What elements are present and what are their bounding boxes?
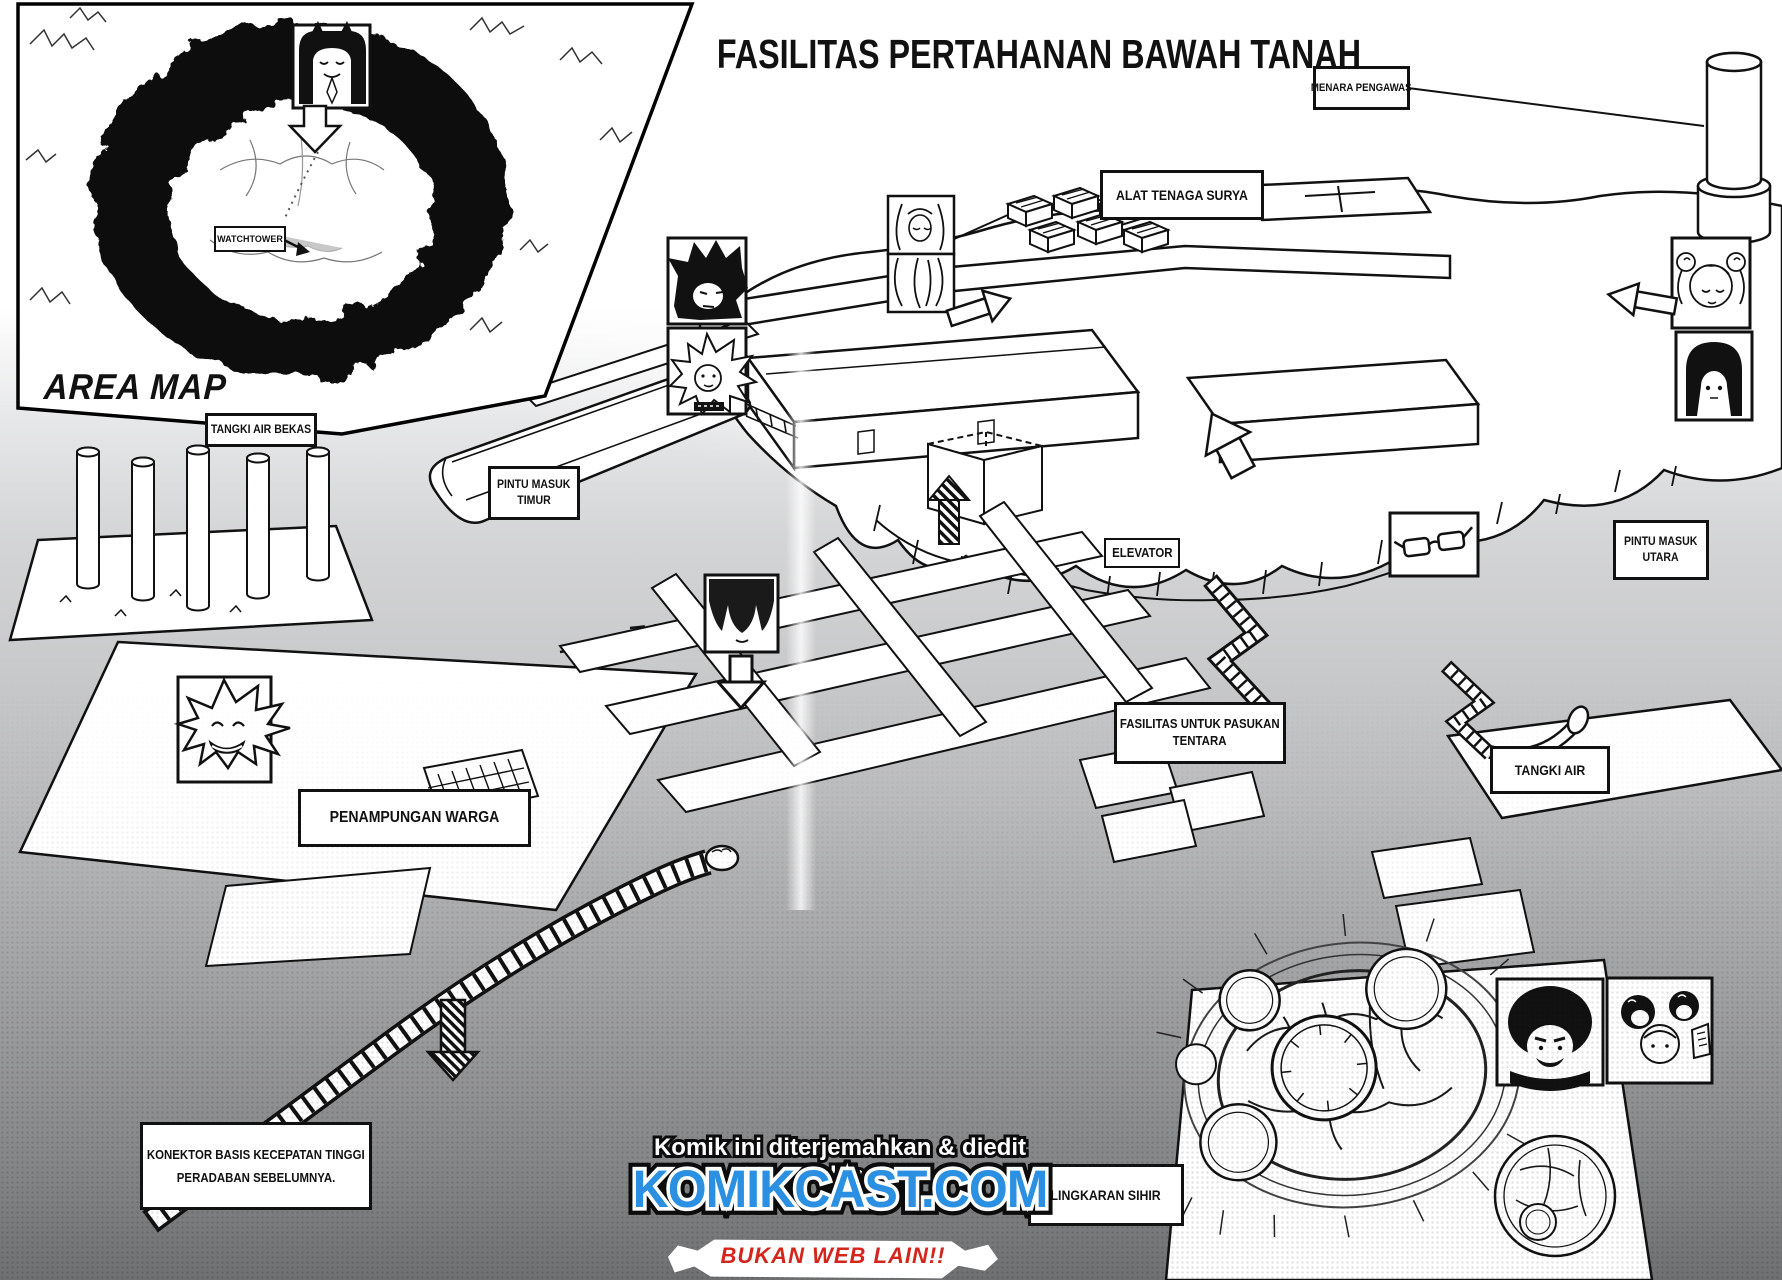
portrait-wavy-hair-girl	[888, 196, 954, 254]
small-magic-circle	[1495, 1136, 1615, 1256]
facility-illustration	[0, 0, 1782, 1280]
label-watchtower: WATCHTOWER	[214, 226, 286, 252]
portrait-white-spiky-boy	[668, 328, 756, 414]
label-pintu-masuk-utara: PINTU MASUK UTARA	[1613, 520, 1709, 580]
komikcast-logo: KOMIKCAST.COM KOMIKCAST.COM KOMIKCAST.CO…	[620, 1160, 1060, 1220]
right-building-cluster	[1080, 744, 1534, 968]
portrait-dark-spiky-boy	[668, 238, 748, 324]
glasses-icon-box	[1390, 513, 1478, 576]
label-elevator: ELEVATOR	[1104, 538, 1180, 568]
label-tangki-air: TANGKI AIR	[1490, 746, 1610, 794]
portrait-group	[1607, 978, 1712, 1083]
manga-facility-map-page: FASILITAS PERTAHANAN BAWAH TANAH AREA MA…	[0, 0, 1782, 1280]
komikcast-tagline: BUKAN WEB LAIN!!	[668, 1243, 998, 1269]
used-water-tanks	[10, 446, 372, 641]
portrait-twintail-girl	[1672, 238, 1750, 328]
portrait-hidden-eyes	[705, 575, 778, 652]
label-konektor: KONEKTOR BASIS KECEPATAN TINGGI PERADABA…	[140, 1122, 372, 1210]
portrait-black-bob-girl	[1676, 332, 1752, 420]
label-tangki-air-bekas: TANGKI AIR BEKAS	[205, 413, 317, 447]
page-title: FASILITAS PERTAHANAN BAWAH TANAH	[660, 32, 1260, 78]
label-pintu-masuk-timur: PINTU MASUK TIMUR	[488, 466, 580, 520]
page-crease	[786, 350, 816, 910]
label-alat-tenaga-surya: ALAT TENAGA SURYA	[1100, 170, 1264, 220]
helipad	[1240, 178, 1430, 220]
area-map-caption: AREA MAP AREA MAP	[43, 366, 228, 408]
label-menara-pengawas: MENARA PENGAWAS	[1313, 66, 1410, 110]
label-penampungan-warga: PENAMPUNGAN WARGA	[298, 789, 531, 847]
portrait-wavy-hair-girl-2	[888, 254, 954, 312]
portrait-mustache-man	[1497, 979, 1603, 1091]
label-fasilitas-pasukan: FASILITAS UNTUK PASUKAN TENTARA	[1114, 702, 1286, 764]
portrait-demon	[293, 21, 370, 108]
